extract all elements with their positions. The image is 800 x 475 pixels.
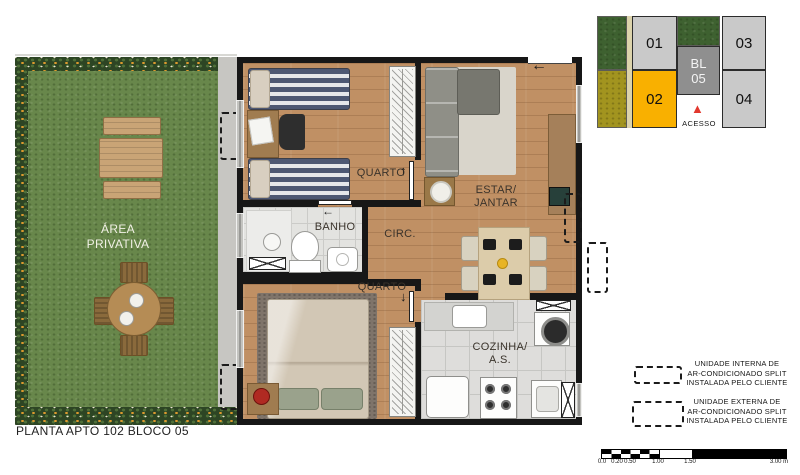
scale-bar	[601, 449, 787, 459]
stove-burner	[485, 384, 495, 394]
legend-line: UNIDADE INTERNA DE	[678, 359, 796, 369]
garden-label-line: PRIVATIVA	[58, 237, 178, 252]
keyplan-yard-area	[597, 70, 627, 128]
plan-title: PLANTA APTO 102 BLOCO 05	[16, 424, 189, 438]
stove-burner	[485, 400, 495, 410]
wardrobe	[389, 327, 416, 417]
legend-internal-ac-symbol	[634, 366, 682, 384]
room-label-banho: BANHO	[306, 221, 364, 234]
shelf	[536, 300, 571, 311]
dining-chair	[527, 266, 547, 291]
scale-tick: 0.20	[611, 459, 623, 465]
door-leaf	[409, 161, 414, 200]
placemat	[509, 274, 522, 285]
garden-label: ÁREA PRIVATIVA	[58, 222, 178, 252]
door-leaf	[409, 291, 414, 322]
garden-sidewalk	[218, 57, 237, 407]
room-label-line: ESTAR/	[459, 184, 533, 197]
flower-border-left	[15, 57, 28, 425]
flower-vase	[253, 388, 270, 405]
floor-plan-canvas: ÁREA PRIVATIVA ← QUARTO ↑ BANHO ← CIR	[0, 0, 800, 475]
table-plate	[119, 311, 134, 326]
legend-external-ac-symbol	[632, 401, 684, 427]
wall	[237, 419, 582, 425]
ac-external-unit-marker	[587, 242, 608, 293]
garden-chair	[120, 262, 148, 283]
toilet-tank	[289, 260, 321, 273]
room-label-circ: CIRC.	[376, 228, 424, 241]
shower-head	[263, 233, 281, 251]
legend-line: AR-CONDICIONADO SPLIT	[678, 369, 796, 379]
garden-round-table	[107, 282, 161, 336]
fridge	[426, 376, 469, 418]
wall	[362, 200, 368, 279]
scale-bar-black-segment	[692, 450, 786, 458]
room-label-line: COZINHA/	[460, 341, 540, 354]
stove	[480, 377, 517, 419]
wall	[243, 272, 368, 284]
plant-pot	[430, 181, 452, 203]
dining-chair	[527, 236, 547, 261]
window	[576, 85, 582, 143]
louver-window	[561, 382, 575, 418]
table-flowers	[497, 258, 508, 269]
flower-border-top	[15, 57, 218, 71]
kitchen-sink	[452, 305, 487, 328]
scale-tick: 0.0	[598, 459, 606, 465]
placemat	[483, 274, 496, 285]
scale-bar-white-segment	[659, 450, 692, 458]
scale-tick: 1.50	[684, 459, 696, 465]
room-label-estar-jantar: ESTAR/ JANTAR	[459, 184, 533, 210]
door-swing-arrow-icon: ↑	[400, 164, 407, 177]
tank-basin	[536, 386, 559, 412]
legend-line: AR-CONDICIONADO SPLIT	[678, 407, 796, 417]
keyplan-unit-01: 01	[632, 16, 677, 70]
window	[576, 383, 582, 417]
wall	[243, 200, 318, 207]
legend-line: UNIDADE EXTERNA DE	[678, 397, 796, 407]
bed-pillow	[250, 70, 270, 108]
bed-pillow	[250, 160, 270, 198]
keyplan-block-line: 05	[691, 71, 705, 86]
placemat	[509, 239, 522, 250]
scale-tick: 0.50	[624, 459, 636, 465]
keyplan-unit-02-highlighted: 02	[632, 70, 677, 128]
table-plate	[129, 293, 144, 308]
wall	[415, 279, 421, 291]
sofa-chaise	[457, 69, 500, 115]
keyplan-block-cell: BL 05	[677, 46, 720, 95]
plot-boundary-line	[15, 54, 237, 56]
placemat	[483, 239, 496, 250]
sofa	[425, 67, 459, 177]
keyplan-green-area	[677, 16, 720, 46]
entry-arrow-icon: ←	[531, 59, 547, 72]
picnic-bench	[103, 181, 161, 199]
scale-tick: 3.00 m	[770, 459, 788, 465]
access-triangle-icon: ▲	[691, 101, 704, 116]
wardrobe	[389, 66, 416, 157]
bath-mat	[249, 257, 286, 270]
door-swing-arrow-icon: ↓	[400, 290, 407, 303]
bed-pillow	[321, 388, 363, 410]
toilet	[291, 231, 319, 262]
window	[236, 310, 244, 368]
door-swing-arrow-icon: ←	[322, 205, 334, 218]
window	[236, 213, 244, 258]
stove-burner	[501, 384, 511, 394]
legend-external-ac-text: UNIDADE EXTERNA DE AR-CONDICIONADO SPLIT…	[678, 397, 796, 426]
access-label: ACESSO	[672, 119, 726, 128]
keyplan-green-area	[597, 16, 627, 70]
flower-border-bottom	[15, 407, 237, 425]
picnic-table	[99, 138, 163, 178]
room-label-line: A.S.	[460, 354, 540, 367]
room-label-cozinha-as: COZINHA/ A.S.	[460, 341, 540, 367]
keyplan-block-line: BL	[691, 56, 707, 71]
sink-basin	[336, 253, 349, 266]
picnic-bench	[103, 117, 161, 135]
scale-bar-checker	[602, 450, 659, 458]
room-label-line: JANTAR	[459, 197, 533, 210]
desk-chair	[279, 114, 305, 150]
garden-label-line: ÁREA	[58, 222, 178, 237]
legend-line: INSTALADA PELO CLIENTE	[678, 416, 796, 426]
stove-burner	[501, 400, 511, 410]
garden-chair	[120, 335, 148, 356]
ac-internal-unit-marker	[564, 193, 582, 243]
keyplan-unit-04: 04	[722, 70, 766, 128]
legend-line: INSTALADA PELO CLIENTE	[678, 378, 796, 388]
legend-internal-ac-text: UNIDADE INTERNA DE AR-CONDICIONADO SPLIT…	[678, 359, 796, 388]
bed-pillow	[277, 388, 319, 410]
desk-papers	[248, 116, 274, 145]
wall	[237, 57, 528, 63]
scale-tick: 1.00	[652, 459, 664, 465]
window	[236, 100, 244, 168]
washer-drum	[541, 317, 570, 346]
keyplan-unit-03: 03	[722, 16, 766, 70]
